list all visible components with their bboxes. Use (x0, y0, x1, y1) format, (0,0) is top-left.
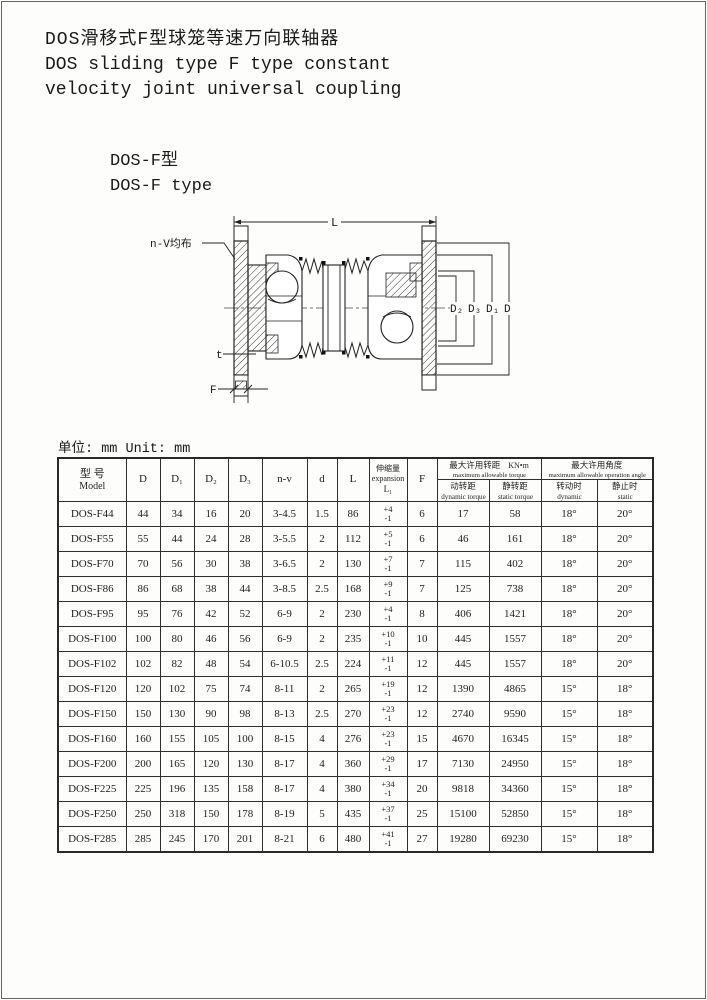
value-cell: 54 (228, 652, 262, 677)
value-cell: 20 (228, 502, 262, 527)
value-cell: 130 (228, 752, 262, 777)
value-cell: 76 (160, 602, 194, 627)
value-cell: 34360 (489, 777, 541, 802)
value-cell: 480 (337, 827, 369, 853)
value-cell: 27 (407, 827, 437, 853)
value-cell: 445 (437, 627, 489, 652)
table-row: DOS-F12012010275748-112265+19-1121390486… (58, 677, 653, 702)
model-cell: DOS-F44 (58, 502, 126, 527)
dim-label-D2: D₂ (450, 304, 463, 316)
value-cell: 150 (194, 802, 228, 827)
dim-label-t: t (216, 350, 223, 362)
value-cell: 3-6.5 (262, 552, 307, 577)
value-cell: 34 (160, 502, 194, 527)
value-cell: 318 (160, 802, 194, 827)
value-cell: +19-1 (369, 677, 407, 702)
value-cell: 270 (337, 702, 369, 727)
value-cell: 18° (541, 652, 597, 677)
table-row: DOS-F2002001651201308-174360+29-11771302… (58, 752, 653, 777)
model-cell: DOS-F160 (58, 727, 126, 752)
value-cell: 155 (160, 727, 194, 752)
left-ball-joint (266, 271, 298, 303)
value-cell: 46 (437, 527, 489, 552)
value-cell: 24950 (489, 752, 541, 777)
col-dynamic-torque: 动转距 dynamic torque (437, 480, 489, 502)
model-cell: DOS-F225 (58, 777, 126, 802)
col-model: 型 号 Model (58, 458, 126, 502)
table-row: DOS-F70705630383-6.52130+7-1711540218°20… (58, 552, 653, 577)
value-cell: 98 (228, 702, 262, 727)
value-cell: 3-8.5 (262, 577, 307, 602)
value-cell: 4 (307, 752, 337, 777)
value-cell: 120 (126, 677, 160, 702)
value-cell: 250 (126, 802, 160, 827)
value-cell: 18° (597, 777, 653, 802)
value-cell: 20° (597, 577, 653, 602)
spec-table-body: DOS-F44443416203-4.51.586+4-16175818°20°… (58, 502, 653, 853)
value-cell: 69230 (489, 827, 541, 853)
value-cell: 18° (541, 527, 597, 552)
value-cell: 38 (194, 577, 228, 602)
spec-table: 型 号 Model D D₁ D₂ D₃ n-v d L 伸缩量 expansi… (57, 457, 654, 853)
value-cell: 2.5 (307, 702, 337, 727)
value-cell: 15° (541, 727, 597, 752)
value-cell: 17 (407, 752, 437, 777)
value-cell: 58 (489, 502, 541, 527)
value-cell: 7130 (437, 752, 489, 777)
value-cell: 56 (160, 552, 194, 577)
value-cell: 4 (307, 727, 337, 752)
value-cell: 201 (228, 827, 262, 853)
value-cell: 20° (597, 527, 653, 552)
value-cell: 2 (307, 602, 337, 627)
model-cell: DOS-F120 (58, 677, 126, 702)
value-cell: 160 (126, 727, 160, 752)
value-cell: 52 (228, 602, 262, 627)
value-cell: +29-1 (369, 752, 407, 777)
col-expansion: 伸缩量 expansion L₁ (369, 458, 407, 502)
value-cell: 2740 (437, 702, 489, 727)
value-cell: 130 (160, 702, 194, 727)
page-title-zh: DOS滑移式F型球笼等速万向联轴器 (45, 28, 401, 53)
value-cell: 6-9 (262, 602, 307, 627)
value-cell: +37-1 (369, 802, 407, 827)
value-cell: 105 (194, 727, 228, 752)
value-cell: 44 (126, 502, 160, 527)
value-cell: 44 (160, 527, 194, 552)
header-row-1: 型 号 Model D D₁ D₂ D₃ n-v d L 伸缩量 expansi… (58, 458, 653, 480)
value-cell: 3-5.5 (262, 527, 307, 552)
col-static-torque: 静转距 static torque (489, 480, 541, 502)
value-cell: 285 (126, 827, 160, 853)
value-cell: 18° (541, 602, 597, 627)
table-row: DOS-F1021028248546-10.52.5224+11-1124451… (58, 652, 653, 677)
value-cell: 25 (407, 802, 437, 827)
value-cell: 402 (489, 552, 541, 577)
value-cell: 9590 (489, 702, 541, 727)
value-cell: 56 (228, 627, 262, 652)
value-cell: 168 (337, 577, 369, 602)
value-cell: 20° (597, 502, 653, 527)
value-cell: 80 (160, 627, 194, 652)
value-cell: 225 (126, 777, 160, 802)
value-cell: 4 (307, 777, 337, 802)
value-cell: 46 (194, 627, 228, 652)
value-cell: 15° (541, 777, 597, 802)
value-cell: 1557 (489, 627, 541, 652)
model-cell: DOS-F250 (58, 802, 126, 827)
n-v-leader (202, 243, 235, 259)
value-cell: 48 (194, 652, 228, 677)
value-cell: 360 (337, 752, 369, 777)
value-cell: 15° (541, 827, 597, 853)
coupling-cross-section: L n-V均布 t F (138, 203, 574, 421)
value-cell: 86 (337, 502, 369, 527)
value-cell: 120 (194, 752, 228, 777)
value-cell: +23-1 (369, 702, 407, 727)
col-d: d (307, 458, 337, 502)
value-cell: 235 (337, 627, 369, 652)
value-cell: +10-1 (369, 627, 407, 652)
value-cell: 15° (541, 802, 597, 827)
value-cell: 115 (437, 552, 489, 577)
value-cell: 8-15 (262, 727, 307, 752)
value-cell: 95 (126, 602, 160, 627)
value-cell: 265 (337, 677, 369, 702)
value-cell: 7 (407, 552, 437, 577)
col-D3: D₃ (228, 458, 262, 502)
model-type-en: DOS-F type (110, 175, 212, 200)
table-row: DOS-F55554424283-5.52112+5-164616118°20° (58, 527, 653, 552)
dim-label-L: L (331, 216, 338, 230)
value-cell: +9-1 (369, 577, 407, 602)
value-cell: 6-9 (262, 627, 307, 652)
value-cell: 20° (597, 627, 653, 652)
value-cell: 28 (228, 527, 262, 552)
value-cell: 5 (307, 802, 337, 827)
value-cell: 2 (307, 677, 337, 702)
value-cell: 16 (194, 502, 228, 527)
value-cell: 1421 (489, 602, 541, 627)
value-cell: 2 (307, 527, 337, 552)
value-cell: 10 (407, 627, 437, 652)
value-cell: 6 (407, 527, 437, 552)
value-cell: 90 (194, 702, 228, 727)
value-cell: 12 (407, 702, 437, 727)
unit-note: 单位: mm Unit: mm (58, 436, 190, 457)
value-cell: +7-1 (369, 552, 407, 577)
table-row: DOS-F15015013090988-132.5270+23-11227409… (58, 702, 653, 727)
value-cell: 178 (228, 802, 262, 827)
value-cell: 24 (194, 527, 228, 552)
value-cell: 20° (597, 602, 653, 627)
value-cell: 9818 (437, 777, 489, 802)
value-cell: 8-21 (262, 827, 307, 853)
value-cell: 4670 (437, 727, 489, 752)
dim-label-D3: D₃ (468, 304, 481, 316)
model-cell: DOS-F285 (58, 827, 126, 853)
value-cell: 17 (437, 502, 489, 527)
value-cell: +4-1 (369, 602, 407, 627)
value-cell: 8-13 (262, 702, 307, 727)
left-flange (234, 226, 266, 396)
page-title-en-line2: velocity joint universal coupling (45, 78, 401, 103)
value-cell: 18° (597, 702, 653, 727)
value-cell: 70 (126, 552, 160, 577)
value-cell: 2 (307, 552, 337, 577)
value-cell: 12 (407, 677, 437, 702)
value-cell: 738 (489, 577, 541, 602)
col-group-torque: 最大许用转距KN•m maximum allowable torque (437, 458, 541, 480)
dim-label-n-v: n-V均布 (150, 237, 192, 251)
value-cell: 75 (194, 677, 228, 702)
value-cell: 125 (437, 577, 489, 602)
value-cell: 18° (597, 827, 653, 853)
col-static-angle: 静止时 static (597, 480, 653, 502)
value-cell: +41-1 (369, 827, 407, 853)
value-cell: 170 (194, 827, 228, 853)
value-cell: 158 (228, 777, 262, 802)
table-row: DOS-F95957642526-92230+4-18406142118°20° (58, 602, 653, 627)
table-row: DOS-F1601601551051008-154276+23-11546701… (58, 727, 653, 752)
value-cell: 245 (160, 827, 194, 853)
table-row: DOS-F2502503181501788-195435+37-12515100… (58, 802, 653, 827)
value-cell: 1390 (437, 677, 489, 702)
value-cell: 2 (307, 627, 337, 652)
model-cell: DOS-F95 (58, 602, 126, 627)
page-title-en-line1: DOS sliding type F type constant (45, 53, 401, 78)
value-cell: 12 (407, 652, 437, 677)
col-group-angle: 最大许用角度 maximum allowable operation angle (541, 458, 653, 480)
value-cell: 18° (597, 677, 653, 702)
value-cell: 100 (126, 627, 160, 652)
value-cell: 1557 (489, 652, 541, 677)
value-cell: 15100 (437, 802, 489, 827)
value-cell: 8 (407, 602, 437, 627)
value-cell: 112 (337, 527, 369, 552)
model-cell: DOS-F55 (58, 527, 126, 552)
value-cell: +23-1 (369, 727, 407, 752)
value-cell: 3-4.5 (262, 502, 307, 527)
value-cell: 6-10.5 (262, 652, 307, 677)
value-cell: 102 (160, 677, 194, 702)
left-yoke (266, 255, 302, 359)
value-cell: 2.5 (307, 577, 337, 602)
value-cell: 165 (160, 752, 194, 777)
model-cell: DOS-F200 (58, 752, 126, 777)
dim-label-D: D (504, 304, 511, 316)
value-cell: +4-1 (369, 502, 407, 527)
value-cell: 19280 (437, 827, 489, 853)
value-cell: 7 (407, 577, 437, 602)
col-L: L (337, 458, 369, 502)
value-cell: 8-17 (262, 777, 307, 802)
table-row: DOS-F2852852451702018-216480+41-12719280… (58, 827, 653, 853)
value-cell: 86 (126, 577, 160, 602)
value-cell: 18° (541, 552, 597, 577)
value-cell: 18° (597, 727, 653, 752)
value-cell: 230 (337, 602, 369, 627)
table-row: DOS-F86866838443-8.52.5168+9-1712573818°… (58, 577, 653, 602)
subtitle-block: DOS-F型 DOS-F type (110, 150, 212, 199)
model-type-zh: DOS-F型 (110, 150, 212, 175)
value-cell: 15° (541, 677, 597, 702)
value-cell: 18° (597, 752, 653, 777)
value-cell: 20° (597, 652, 653, 677)
value-cell: 20° (597, 552, 653, 577)
value-cell: 2.5 (307, 652, 337, 677)
value-cell: 435 (337, 802, 369, 827)
model-cell: DOS-F150 (58, 702, 126, 727)
value-cell: 30 (194, 552, 228, 577)
value-cell: 276 (337, 727, 369, 752)
value-cell: 4865 (489, 677, 541, 702)
value-cell: 18° (597, 802, 653, 827)
model-cell: DOS-F86 (58, 577, 126, 602)
value-cell: 380 (337, 777, 369, 802)
value-cell: 161 (489, 527, 541, 552)
value-cell: 18° (541, 577, 597, 602)
value-cell: 68 (160, 577, 194, 602)
value-cell: +34-1 (369, 777, 407, 802)
value-cell: 196 (160, 777, 194, 802)
technical-drawing: L n-V均布 t F (138, 203, 574, 421)
value-cell: 1.5 (307, 502, 337, 527)
value-cell: 15° (541, 752, 597, 777)
value-cell: +5-1 (369, 527, 407, 552)
value-cell: 18° (541, 502, 597, 527)
col-D2: D₂ (194, 458, 228, 502)
value-cell: 42 (194, 602, 228, 627)
col-n-v: n-v (262, 458, 307, 502)
value-cell: 74 (228, 677, 262, 702)
value-cell: 20 (407, 777, 437, 802)
value-cell: 6 (307, 827, 337, 853)
dim-label-F: F (210, 385, 217, 397)
value-cell: 15 (407, 727, 437, 752)
value-cell: 82 (160, 652, 194, 677)
value-cell: 150 (126, 702, 160, 727)
table-row: DOS-F44443416203-4.51.586+4-16175818°20° (58, 502, 653, 527)
col-F: F (407, 458, 437, 502)
value-cell: 130 (337, 552, 369, 577)
model-cell: DOS-F102 (58, 652, 126, 677)
value-cell: 55 (126, 527, 160, 552)
table-row: DOS-F1001008046566-92235+10-110445155718… (58, 627, 653, 652)
value-cell: 102 (126, 652, 160, 677)
value-cell: 8-11 (262, 677, 307, 702)
value-cell: 445 (437, 652, 489, 677)
value-cell: 8-17 (262, 752, 307, 777)
col-D1: D₁ (160, 458, 194, 502)
model-cell: DOS-F70 (58, 552, 126, 577)
title-block: DOS滑移式F型球笼等速万向联轴器 DOS sliding type F typ… (45, 28, 401, 102)
value-cell: 18° (541, 627, 597, 652)
value-cell: 44 (228, 577, 262, 602)
value-cell: 15° (541, 702, 597, 727)
value-cell: 52850 (489, 802, 541, 827)
value-cell: 200 (126, 752, 160, 777)
catalog-page: DOS滑移式F型球笼等速万向联轴器 DOS sliding type F typ… (0, 0, 707, 1000)
col-dynamic-angle: 转动时 dynamic (541, 480, 597, 502)
value-cell: 135 (194, 777, 228, 802)
value-cell: 406 (437, 602, 489, 627)
col-D: D (126, 458, 160, 502)
table-row: DOS-F2252251961351588-174380+34-12098183… (58, 777, 653, 802)
right-yoke (368, 255, 422, 359)
value-cell: 6 (407, 502, 437, 527)
value-cell: 8-19 (262, 802, 307, 827)
value-cell: 224 (337, 652, 369, 677)
model-cell: DOS-F100 (58, 627, 126, 652)
value-cell: +11-1 (369, 652, 407, 677)
value-cell: 38 (228, 552, 262, 577)
value-cell: 16345 (489, 727, 541, 752)
value-cell: 100 (228, 727, 262, 752)
dim-label-D1: D₁ (486, 304, 499, 316)
